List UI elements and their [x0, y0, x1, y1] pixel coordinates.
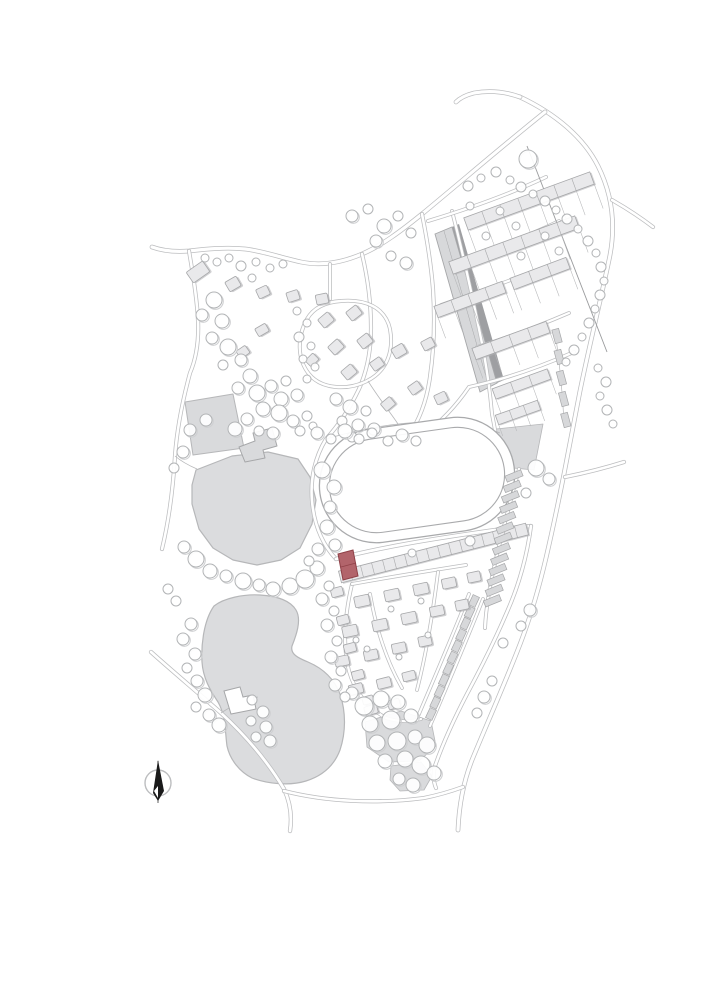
tree: [196, 309, 208, 321]
tree: [562, 358, 570, 366]
tree: [404, 709, 418, 723]
tree: [388, 606, 394, 612]
tree: [212, 718, 226, 732]
tree: [329, 679, 341, 691]
tree: [463, 181, 473, 191]
main-northwest-road-casing: [152, 112, 545, 264]
tree: [241, 413, 253, 425]
tree: [203, 564, 217, 578]
tree: [329, 539, 341, 551]
tree: [393, 773, 405, 785]
tree: [378, 754, 392, 768]
house: [455, 599, 470, 611]
tree: [506, 176, 514, 184]
tree: [419, 737, 435, 753]
tree: [516, 182, 526, 192]
plot-line: [541, 410, 545, 421]
plot-line: [594, 184, 603, 208]
tree: [266, 264, 274, 272]
tree: [220, 339, 236, 355]
tree: [287, 415, 299, 427]
tree: [304, 556, 314, 566]
tree: [299, 355, 307, 363]
stack-unit: [483, 595, 501, 607]
plot-line: [551, 276, 559, 297]
plot-line: [504, 217, 513, 241]
tree: [264, 735, 276, 747]
row-body: [495, 400, 540, 424]
tree: [260, 721, 272, 733]
plot-line: [543, 241, 552, 265]
tree: [543, 473, 555, 485]
tree: [302, 411, 312, 421]
tree: [249, 385, 265, 401]
tree: [408, 549, 416, 557]
tree: [189, 648, 201, 660]
tree: [346, 210, 358, 222]
tree: [388, 732, 406, 750]
tree: [400, 257, 412, 269]
site-plan-page: [0, 0, 707, 1000]
tree: [191, 702, 201, 712]
tree: [555, 247, 563, 255]
tree: [243, 369, 257, 383]
tree: [477, 174, 485, 182]
tree: [367, 428, 377, 438]
tree: [569, 345, 579, 355]
grid-inner-road-1-casing: [370, 594, 402, 688]
tree: [482, 232, 490, 240]
tree: [541, 232, 549, 240]
tree: [397, 751, 413, 767]
east-parking-slivers: [552, 328, 571, 427]
tree: [600, 277, 608, 285]
stack-unit: [556, 370, 566, 385]
tree: [478, 691, 490, 703]
plot-line: [540, 204, 549, 228]
tree: [201, 254, 209, 262]
plot-line: [514, 290, 522, 311]
plot-line: [468, 230, 477, 254]
tree: [213, 258, 221, 266]
tree: [517, 252, 525, 260]
slab-west-road: [409, 214, 434, 435]
tree: [609, 420, 617, 428]
plot-line: [576, 191, 585, 215]
north-arrow: [145, 760, 171, 803]
tree: [336, 666, 346, 676]
plot-line: [506, 293, 514, 314]
plot-line: [522, 210, 531, 234]
house: [380, 396, 396, 411]
tree: [200, 414, 212, 426]
tree: [465, 536, 475, 546]
tree: [220, 570, 232, 582]
tree: [184, 424, 196, 436]
tree: [591, 305, 599, 313]
tree: [169, 463, 179, 473]
tree: [253, 579, 265, 591]
mews-east-road: [430, 599, 483, 726]
tree: [267, 427, 279, 439]
tree: [343, 400, 357, 414]
tree: [332, 636, 342, 646]
house: [327, 339, 344, 356]
tree: [472, 708, 482, 718]
tree: [303, 375, 311, 383]
tree: [383, 436, 393, 446]
tree: [266, 582, 280, 596]
tree: [355, 697, 373, 715]
tree: [271, 405, 287, 421]
tree: [232, 382, 244, 394]
tree: [418, 598, 424, 604]
tree: [353, 637, 359, 643]
tree: [251, 732, 261, 742]
tree: [362, 716, 378, 732]
tree: [182, 663, 192, 673]
plot-line: [514, 393, 519, 408]
east-spur: [565, 462, 624, 477]
tree: [311, 427, 323, 439]
tree: [324, 581, 334, 591]
tree: [279, 260, 287, 268]
tree: [524, 604, 536, 616]
slab-west-road-casing: [409, 214, 434, 435]
house: [340, 364, 357, 381]
tree: [163, 584, 173, 594]
plot-line: [496, 399, 501, 414]
tree: [246, 716, 256, 726]
house: [467, 571, 482, 583]
tree: [601, 377, 611, 387]
tree: [491, 167, 501, 177]
tree: [529, 190, 537, 198]
plot-line: [525, 248, 534, 272]
tree: [521, 488, 531, 498]
tree: [274, 392, 288, 406]
tree: [466, 202, 474, 210]
tree: [487, 676, 497, 686]
tree: [307, 342, 315, 350]
tree: [354, 434, 364, 444]
stack-unit: [558, 391, 568, 406]
tree: [312, 543, 324, 555]
tree: [311, 363, 319, 371]
plot-line: [533, 386, 538, 401]
tree: [377, 219, 391, 233]
tree: [427, 766, 441, 780]
tree: [340, 692, 350, 702]
tree: [324, 501, 336, 513]
tree: [282, 578, 298, 594]
tree: [338, 424, 352, 438]
tree: [257, 706, 269, 718]
tree: [364, 646, 370, 652]
tree: [252, 258, 260, 266]
tree: [574, 225, 582, 233]
plot-line: [489, 299, 497, 320]
house: [345, 305, 362, 322]
tree: [578, 333, 586, 341]
row-C2: [510, 257, 579, 310]
tree: [326, 434, 336, 444]
site-plan-drawing: [0, 0, 707, 1000]
tree: [177, 633, 189, 645]
tree: [592, 249, 600, 257]
plot-line: [513, 346, 520, 365]
stack-unit: [561, 412, 571, 427]
plot-line: [561, 235, 570, 259]
plot-line: [489, 261, 498, 285]
north-road: [456, 92, 520, 102]
tree: [254, 426, 264, 436]
tree: [496, 207, 504, 215]
tree: [330, 393, 342, 405]
plot-line: [532, 339, 539, 358]
tree: [320, 520, 334, 534]
tree: [295, 426, 305, 436]
tree: [528, 460, 544, 476]
lake-upper: [192, 452, 316, 565]
tree: [316, 593, 328, 605]
tree: [512, 222, 520, 230]
tree: [235, 354, 247, 366]
plot-line: [551, 379, 556, 394]
tree: [215, 314, 229, 328]
tree: [235, 573, 251, 589]
tree: [329, 606, 339, 616]
tree: [594, 364, 602, 372]
tree: [552, 206, 560, 214]
tree: [188, 551, 204, 567]
tree: [247, 695, 257, 705]
tree: [595, 290, 605, 300]
tree: [425, 632, 431, 638]
tree: [411, 436, 421, 446]
tree: [596, 392, 604, 400]
tree: [303, 319, 311, 327]
tree: [206, 332, 218, 344]
tree: [516, 621, 526, 631]
tree: [396, 654, 402, 660]
tree: [218, 360, 228, 370]
tree: [325, 651, 337, 663]
tree: [391, 695, 405, 709]
tree: [314, 462, 330, 478]
tree: [596, 262, 606, 272]
plot-line: [438, 318, 446, 339]
tree: [583, 236, 593, 246]
tree: [256, 402, 270, 416]
tree: [363, 204, 373, 214]
tree: [236, 261, 246, 271]
plot-line: [533, 283, 541, 304]
tree: [498, 638, 508, 648]
tree: [373, 691, 389, 707]
grid-inner-road-1: [370, 594, 402, 688]
tree: [191, 675, 203, 687]
tree: [602, 405, 612, 415]
tree: [406, 228, 416, 238]
tree: [519, 150, 537, 168]
tree: [291, 389, 303, 401]
tree: [562, 214, 572, 224]
tree: [294, 332, 304, 342]
tree: [178, 541, 190, 553]
house: [317, 312, 334, 329]
tree: [281, 376, 291, 386]
tree: [584, 318, 594, 328]
tree: [203, 709, 215, 721]
tree: [369, 735, 385, 751]
stack-unit: [485, 584, 503, 596]
tree: [406, 778, 420, 792]
tree: [225, 254, 233, 262]
tree: [352, 419, 364, 431]
stack-unit: [489, 563, 507, 575]
tree: [265, 380, 277, 392]
tree: [198, 688, 212, 702]
plot-line: [507, 254, 516, 278]
tree: [393, 211, 403, 221]
tree: [386, 251, 396, 261]
plot-line: [570, 269, 578, 290]
tree: [248, 274, 256, 282]
tree: [361, 406, 371, 416]
tree: [321, 619, 333, 631]
tree: [540, 196, 550, 206]
tree: [206, 292, 222, 308]
tree: [177, 446, 189, 458]
stack-unit: [487, 574, 505, 586]
northeast-spur: [612, 200, 653, 227]
tree: [382, 711, 400, 729]
tree: [396, 429, 408, 441]
tree: [171, 596, 181, 606]
plot-line: [527, 415, 531, 426]
tree: [370, 235, 382, 247]
house: [315, 293, 329, 305]
main-northwest-road: [152, 112, 545, 264]
tree: [293, 307, 301, 315]
tree: [228, 422, 242, 436]
tree: [327, 480, 341, 494]
tree: [185, 618, 197, 630]
stack-unit: [491, 553, 509, 565]
